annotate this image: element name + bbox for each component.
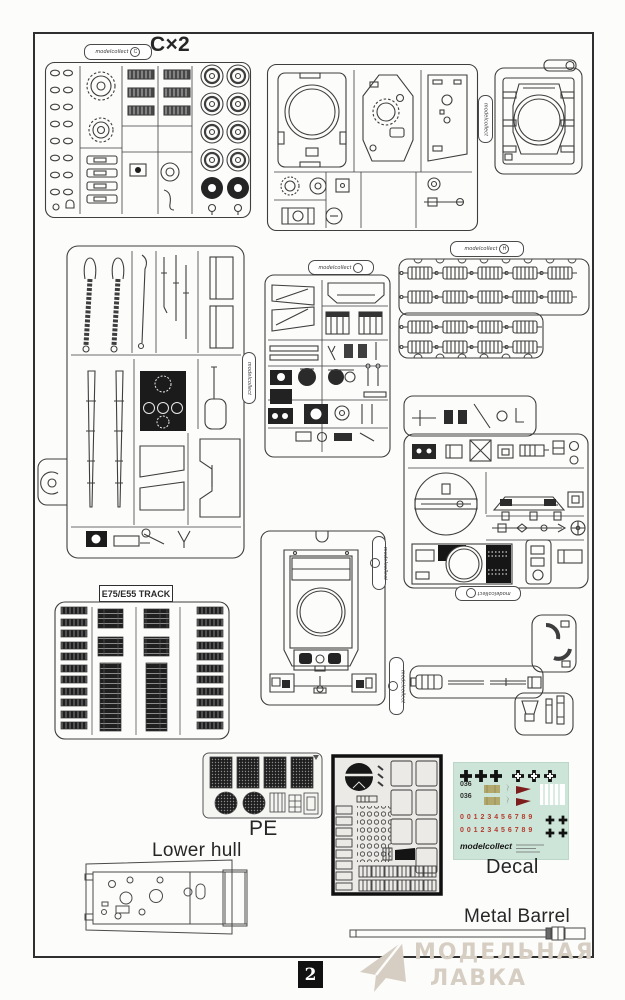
decal-sheet: 036 036 0 0 1 2 3 4 5 6 7 8 9 0 0 1 2 3 … <box>453 762 569 860</box>
decal-code-1: 036 <box>460 781 472 788</box>
sprue-letter-icon: C <box>130 47 140 57</box>
watermark: МОДЕЛЬНАЯ ЛАВКА <box>352 936 608 996</box>
brand-text: modelcollect <box>382 547 388 580</box>
decal-label: Decal <box>486 856 539 879</box>
sprue-c <box>44 60 252 220</box>
pe-dark-fret <box>331 754 443 896</box>
sprue-letter-icon <box>370 558 380 568</box>
watermark-line1: МОДЕЛЬНАЯ <box>414 940 595 965</box>
sprue-e <box>262 256 394 460</box>
sprue-turret <box>266 62 480 234</box>
tag-modelcollect-c: modelcollect C <box>84 44 152 60</box>
sprue-j <box>398 388 594 606</box>
brand-text: modelcollect <box>246 362 252 395</box>
watermark-plane-icon <box>356 938 412 994</box>
instruction-page: modelcollect C C×2 <box>0 0 625 1000</box>
sprue-d <box>36 243 252 563</box>
sprue-track <box>48 581 236 745</box>
decal-small-crosses <box>546 816 568 838</box>
decal-digits-1: 0 0 1 2 3 4 5 6 7 8 9 <box>460 814 533 821</box>
sprue-h <box>396 238 594 362</box>
decal-brand: modelcollect <box>460 841 512 851</box>
decal-digits-2: 0 0 1 2 3 4 5 6 7 8 9 <box>460 827 533 834</box>
pe-label: PE <box>249 817 278 841</box>
pe-fret <box>202 752 324 822</box>
sprue-upper-hull <box>258 528 390 710</box>
decal-code-2: 036 <box>460 793 472 800</box>
page-number: 2 <box>298 961 323 988</box>
sprue-hull-top-right <box>486 58 588 182</box>
decal-crosses <box>460 770 556 782</box>
watermark-line2: ЛАВКА <box>430 966 527 991</box>
tag-modelcollect-hull: modelcollect <box>372 536 386 590</box>
sprue-c-label: C×2 <box>150 33 190 57</box>
brand-text: modelcollect <box>96 49 129 55</box>
lower-hull-drawing <box>68 854 263 940</box>
tag-modelcollect-d: modelcollect <box>242 352 256 404</box>
sprue-barrel <box>386 593 596 743</box>
